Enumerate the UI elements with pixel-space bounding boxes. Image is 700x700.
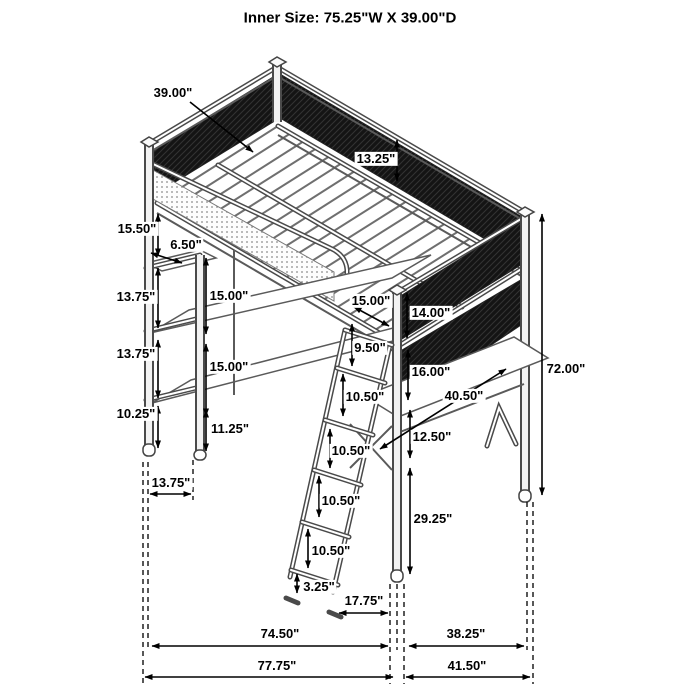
- dim-ladder-rung-4-label: 10.50": [310, 544, 353, 558]
- dim-desk-height-label: 29.25": [412, 512, 455, 526]
- dim-ladder-opening-label: 15.00": [350, 294, 393, 308]
- dim-ladder-rung-1-label: 10.50": [344, 390, 387, 404]
- dim-left-gap-mid2-label: 13.75": [115, 347, 158, 361]
- dim-upper-mesh-height-label: 14.00": [410, 306, 453, 320]
- dim-ladder-spread-label: 17.75": [343, 594, 386, 608]
- dim-ladder-top-gap-label: 9.50": [352, 341, 387, 355]
- dim-desk-length-label: 40.50": [443, 389, 486, 403]
- dim-frame-width-label: 74.50": [259, 627, 302, 641]
- page-title: Inner Size: 75.25"W X 39.00"D: [244, 10, 457, 27]
- dim-top-shelf-depth-label: 6.50": [168, 238, 203, 252]
- ladder: [286, 330, 392, 617]
- dim-ladder-foot-label: 3.25": [301, 580, 336, 594]
- dim-total-height-label: 72.00": [545, 362, 588, 376]
- dim-desk-gap-label: 12.50": [411, 430, 454, 444]
- dim-lower-mesh-height-label: 16.00": [410, 365, 453, 379]
- dim-bed-depth-label: 39.00": [152, 86, 195, 100]
- dim-ladder-rung-3-label: 10.50": [320, 494, 363, 508]
- dim-left-leg-offset-label: 13.75": [150, 476, 193, 490]
- dim-left-gap-bottom-label: 10.25": [115, 407, 158, 421]
- dim-shelf-gap-lower-label: 15.00": [208, 360, 251, 374]
- dim-left-gap-mid1-label: 13.75": [115, 290, 158, 304]
- dim-ladder-rung-2-label: 10.50": [330, 444, 373, 458]
- dim-lower-shelf-height-label: 11.25": [209, 422, 251, 436]
- dim-desk-depth-label: 38.25": [445, 627, 488, 641]
- loft-bed-dimension-diagram: Inner Size: 75.25"W X 39.00"D 39.00" 13.…: [0, 0, 700, 700]
- dim-total-depth-label: 41.50": [446, 659, 489, 673]
- guard-mesh-back-right: [280, 74, 524, 262]
- dim-left-gap-top-label: 15.50": [116, 222, 159, 236]
- dim-shelf-gap-upper-label: 15.00": [208, 289, 251, 303]
- dim-total-width-label: 77.75": [256, 659, 299, 673]
- dim-guard-rail-height-label: 13.25": [355, 152, 398, 166]
